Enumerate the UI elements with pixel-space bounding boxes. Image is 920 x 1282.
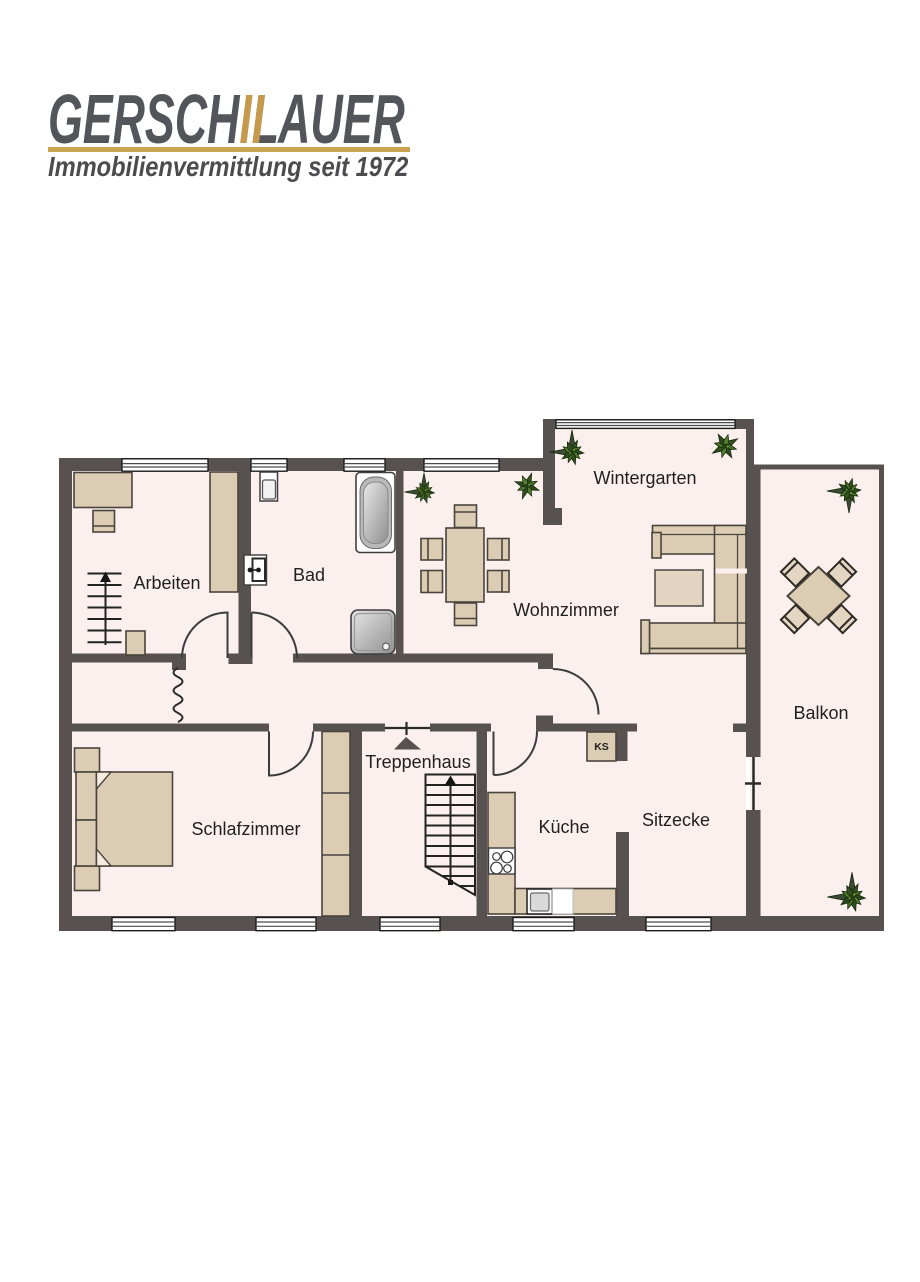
svg-text:Wintergarten: Wintergarten — [593, 468, 696, 488]
svg-text:Schlafzimmer: Schlafzimmer — [191, 819, 300, 839]
svg-text:KS: KS — [594, 741, 609, 753]
svg-text:Balkon: Balkon — [793, 703, 848, 723]
svg-text:Wohnzimmer: Wohnzimmer — [513, 600, 619, 620]
svg-text:Bad: Bad — [293, 565, 325, 585]
svg-text:Arbeiten: Arbeiten — [133, 573, 200, 593]
svg-text:Sitzecke: Sitzecke — [642, 810, 710, 830]
svg-text:Treppenhaus: Treppenhaus — [365, 752, 470, 772]
svg-text:Küche: Küche — [538, 817, 589, 837]
